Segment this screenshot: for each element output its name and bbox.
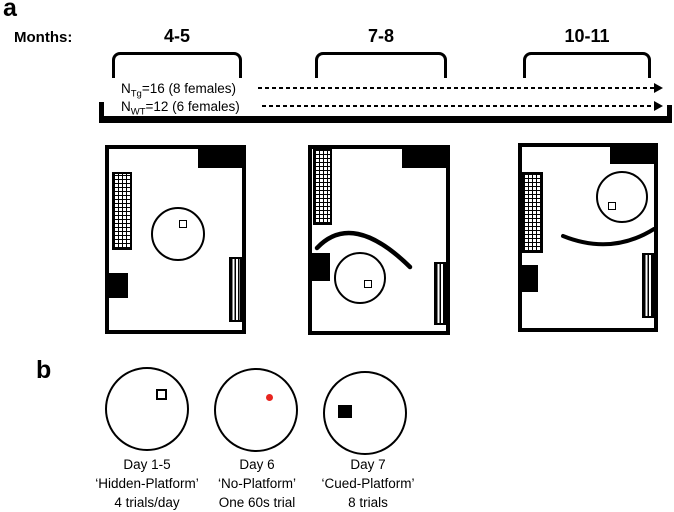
striped-cue-right [434,262,446,325]
panel-b-label: b [36,358,51,383]
timeline-bar [99,116,672,123]
tg-timeline-arrow [258,87,654,89]
cohort-tg-rest: =16 (8 females) [142,81,236,96]
cohort-tg-label: NTg=16 (8 females) [121,81,236,100]
hidden-platform-pool [105,367,189,451]
timeline-right-tick [667,105,672,123]
cued-platform-marker-icon [338,405,352,418]
phase-cued-platform: Day 7 ‘Cued-Platform’ 8 trials [283,455,453,512]
maze-room-4-5-inner [109,149,242,330]
age-group-10-11: 10-11 [532,26,642,47]
curtain-arc [312,149,446,331]
striped-cue-right [229,257,242,322]
pool-circle [151,207,205,261]
cohort-tg-prefix: N [121,81,131,96]
bracket-7-8 [315,52,447,78]
maze-room-10-11 [518,143,658,332]
timeline-left-tick [99,102,104,123]
cued-platform-pool [323,371,407,455]
months-label: Months: [14,29,72,46]
probe-start-dot-icon [266,394,273,401]
hidden-platform-square [179,220,187,228]
black-square-cue-bottom-left [522,265,538,292]
water-maze-design-figure: a Months: 4-5 7-8 10-11 NTg=16 (8 female… [0,0,674,512]
maze-room-7-8-inner [312,149,446,331]
wt-arrowhead-icon [654,101,663,111]
maze-room-10-11-inner [522,147,654,328]
cohort-wt-rest: =12 (6 females) [146,99,240,114]
grid-cue-left [112,172,132,250]
grid-cue-left [522,172,543,253]
age-group-4-5: 4-5 [122,26,232,47]
tg-arrowhead-icon [654,83,663,93]
wt-dash-line [262,105,654,107]
cohort-wt-label: NWT=12 (6 females) [121,99,240,118]
maze-room-4-5 [105,145,246,334]
age-group-7-8: 7-8 [326,26,436,47]
no-platform-pool [214,368,298,452]
maze-room-7-8 [308,145,450,335]
phase-detail: 8 trials [283,493,453,512]
tg-dash-line [258,87,654,89]
bracket-4-5 [112,52,242,78]
panel-a-label: a [3,0,17,21]
black-square-cue-bottom-left [109,273,128,298]
hidden-platform-marker-icon [156,389,167,400]
wt-timeline-arrow [262,105,654,107]
phase-name: ‘Cued-Platform’ [283,474,453,493]
phase-day: Day 7 [283,455,453,474]
black-rect-cue-top-right [198,149,242,168]
striped-cue-right [642,253,654,318]
cohort-wt-prefix: N [121,99,131,114]
bracket-10-11 [523,52,651,78]
